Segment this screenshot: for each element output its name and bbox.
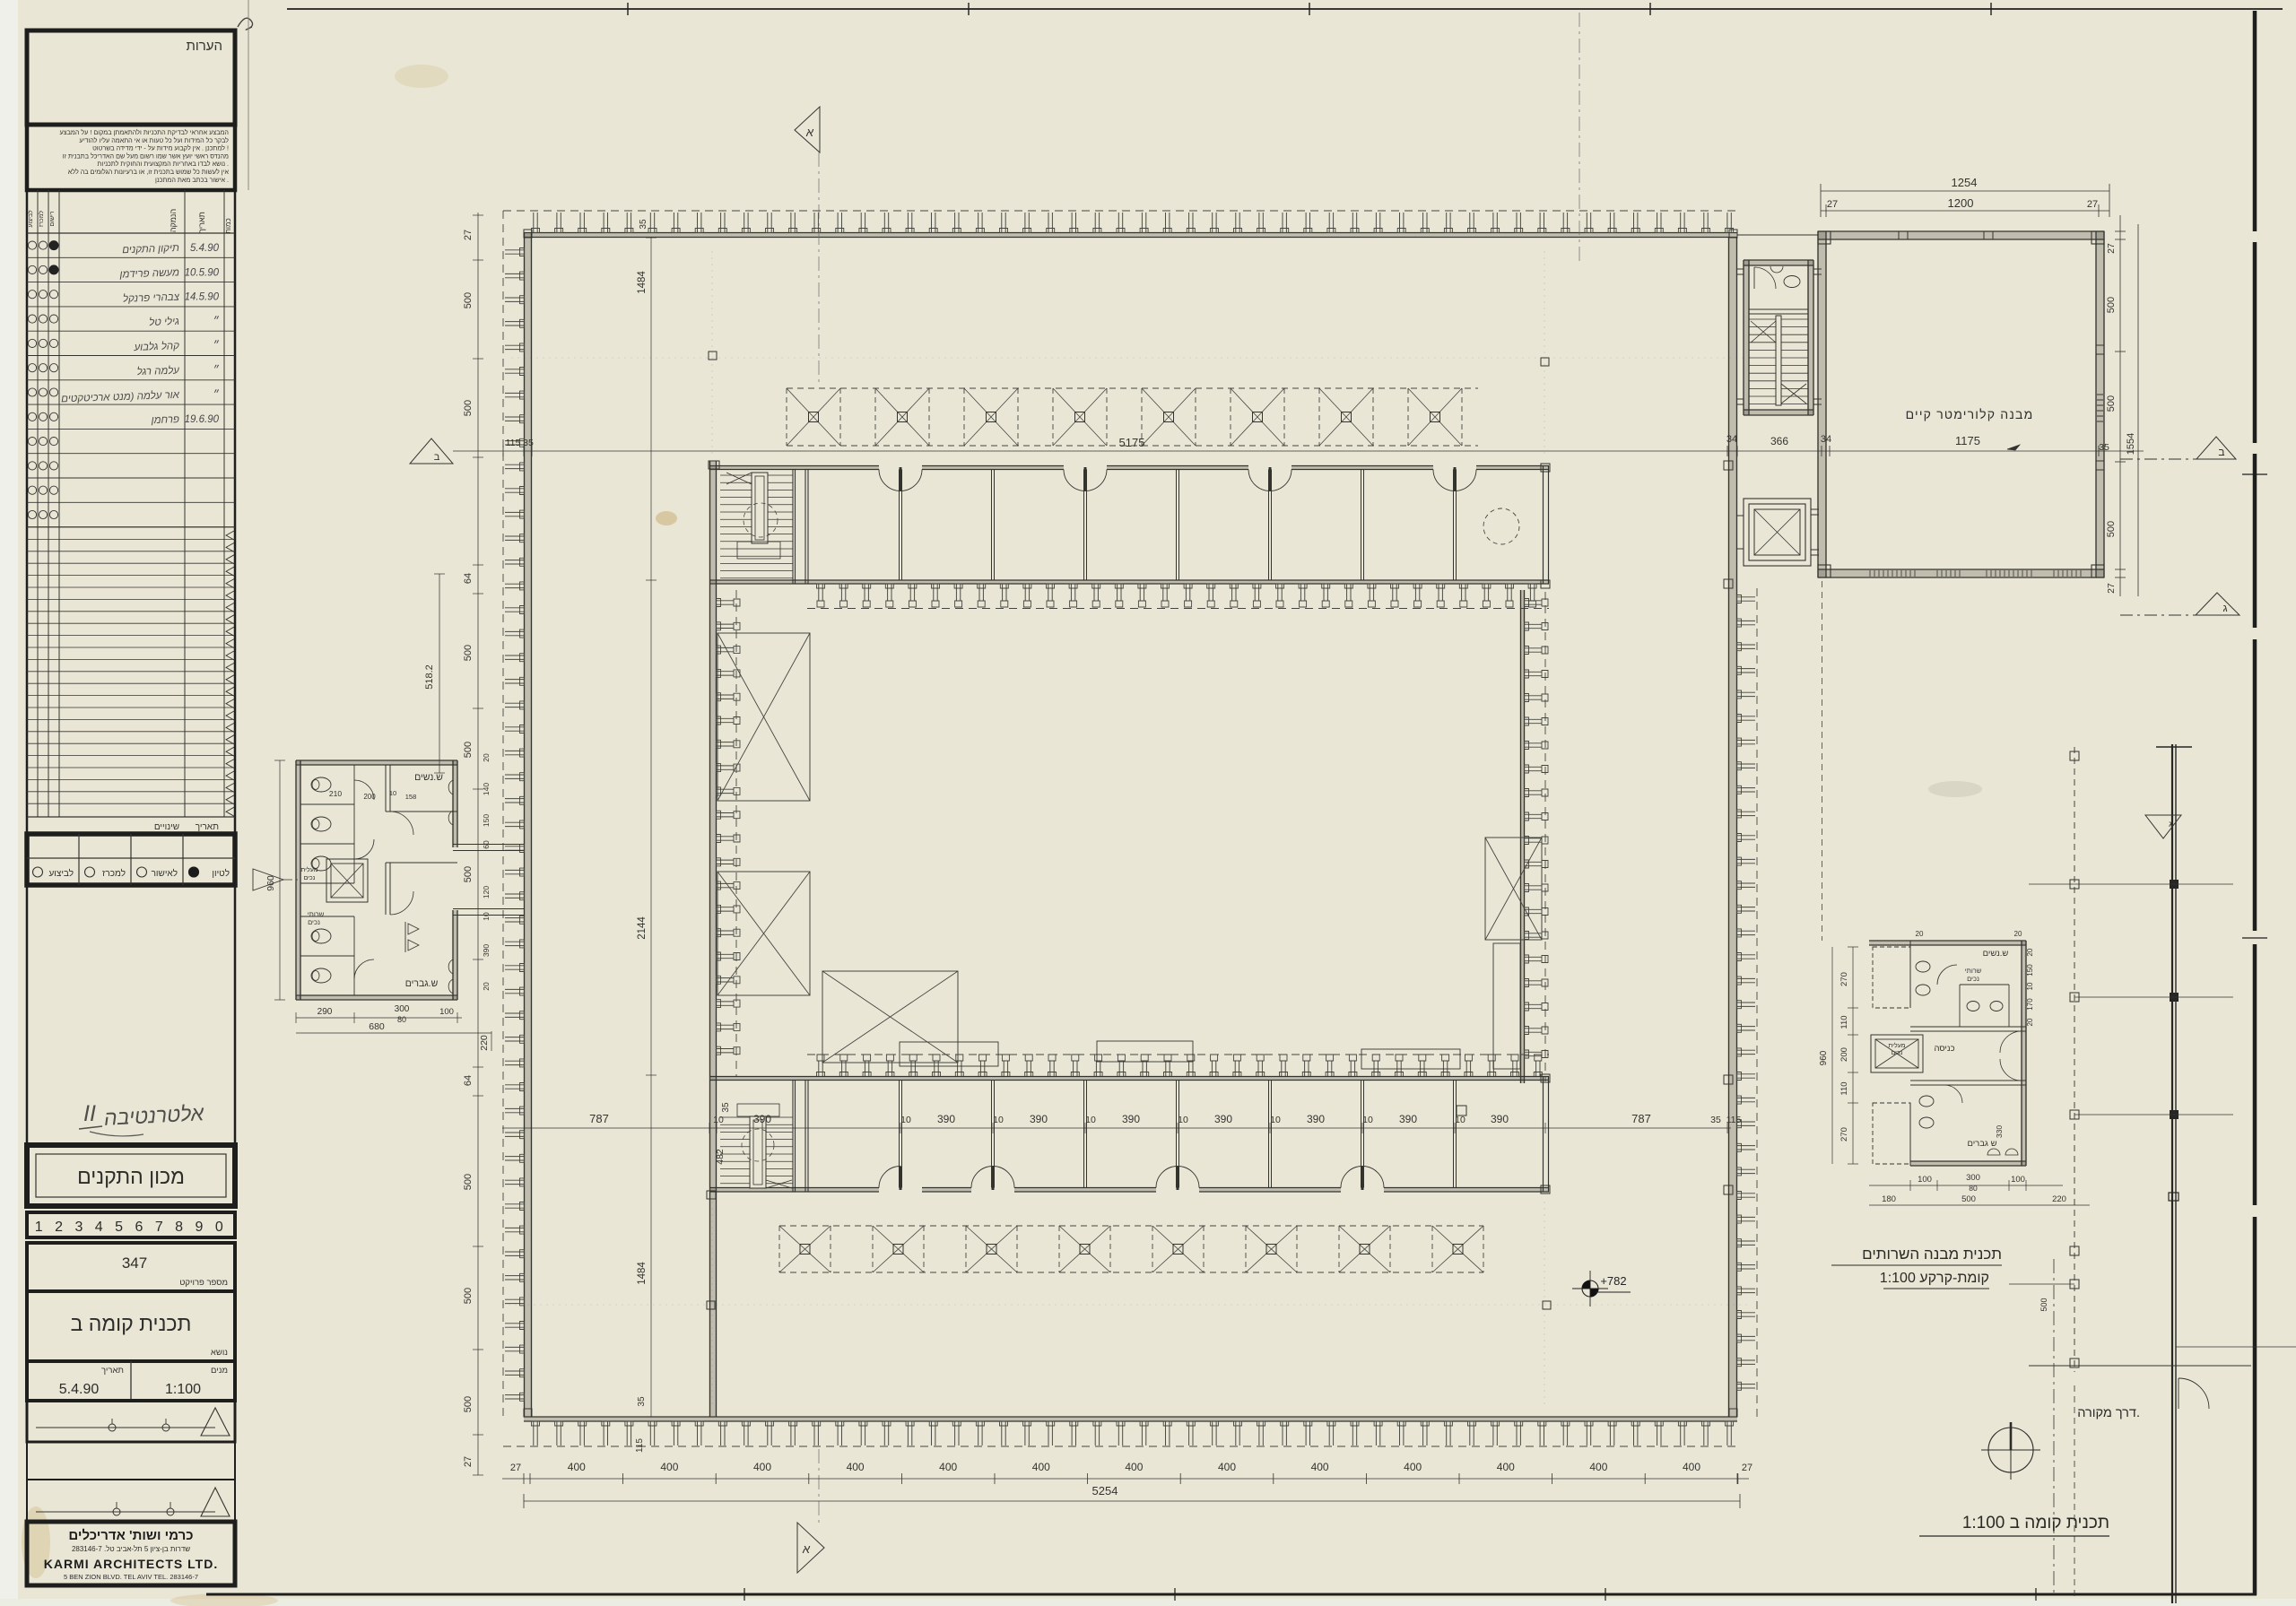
svg-text:רישום: רישום (49, 211, 56, 226)
svg-text:140: 140 (482, 783, 491, 795)
svg-text:220: 220 (2052, 1194, 2066, 1204)
svg-text:1484: 1484 (637, 271, 648, 294)
svg-text:10.5.90: 10.5.90 (185, 267, 220, 278)
svg-text:64: 64 (463, 573, 474, 584)
svg-text:35: 35 (1710, 1115, 1721, 1125)
svg-text:400: 400 (1125, 1461, 1143, 1473)
svg-text:400: 400 (847, 1461, 865, 1473)
svg-text:400: 400 (1589, 1461, 1607, 1473)
svg-text:220: 220 (479, 1035, 490, 1051)
svg-text:20: 20 (2026, 948, 2034, 956)
svg-text:300: 300 (395, 1004, 410, 1014)
svg-text:קהל גלבוע: קהל גלבוע (133, 340, 179, 353)
svg-text:קומת-קרקע 1:100: קומת-קרקע 1:100 (1880, 1271, 1989, 1286)
svg-text:500: 500 (2106, 297, 2117, 313)
svg-text:תכנית קומה ב 1:100: תכנית קומה ב 1:100 (1962, 1514, 2109, 1532)
svg-text:300: 300 (1966, 1173, 1980, 1183)
svg-text:מבנה קלורימטר קיים: מבנה קלורימטר קיים (1906, 407, 2034, 421)
svg-text:10: 10 (993, 1115, 1004, 1125)
svg-text:500: 500 (463, 1174, 474, 1190)
svg-text:10: 10 (713, 1115, 724, 1125)
svg-text:500: 500 (2106, 521, 2117, 537)
svg-text:5254: 5254 (1092, 1484, 1118, 1497)
svg-text:200: 200 (363, 793, 376, 801)
svg-text:500: 500 (463, 292, 474, 308)
svg-text:ש.נשים: ש.נשים (1983, 949, 2009, 959)
svg-text:400: 400 (753, 1461, 771, 1473)
svg-text:עלמה רגל: עלמה רגל (136, 364, 179, 378)
svg-text:מעלית: מעלית (1888, 1042, 1905, 1049)
svg-text:לבקר כל המידות ועל כל טעות או: לבקר כל המידות ועל כל טעות או אי התאמה ע… (79, 136, 229, 144)
svg-text:500: 500 (463, 866, 474, 882)
svg-text:390: 390 (753, 1113, 771, 1125)
svg-text:הנמקה: הנמקה (169, 209, 178, 232)
svg-text:ש.גברים: ש.גברים (405, 978, 439, 989)
svg-text:270: 270 (1839, 1127, 1849, 1142)
svg-text:המבצע אחראי לבדיקת התכניות ולה: המבצע אחראי לבדיקת התכניות ולהתאמתן במקו… (59, 128, 229, 136)
svg-text:תאריך: תאריך (101, 1366, 124, 1376)
svg-text:1484: 1484 (637, 1262, 648, 1285)
svg-text:500: 500 (2039, 1298, 2048, 1311)
svg-text:500: 500 (1961, 1194, 1976, 1204)
svg-text:מכון התקנים: מכון התקנים (77, 1165, 185, 1188)
svg-text:אישור בכתב מאת המתכנן .: אישור בכתב מאת המתכנן . (155, 176, 229, 184)
svg-text:5175: 5175 (1119, 436, 1145, 449)
svg-text:120: 120 (482, 886, 491, 898)
svg-text:10: 10 (900, 1115, 911, 1125)
svg-text:115: 115 (1726, 1115, 1742, 1125)
svg-text:1175: 1175 (1955, 434, 1980, 447)
svg-text:366: 366 (1770, 435, 1788, 447)
svg-text:115: 115 (635, 1438, 645, 1453)
svg-text:״: ״ (213, 316, 220, 327)
svg-text:20: 20 (482, 982, 491, 991)
svg-text:680: 680 (369, 1021, 385, 1032)
svg-text:35: 35 (523, 438, 534, 448)
svg-text:170: 170 (2026, 998, 2034, 1011)
svg-text:מספר פרויקט: מספר פרויקט (179, 1278, 228, 1288)
svg-text:KARMI ARCHITECTS LTD.: KARMI ARCHITECTS LTD. (44, 1557, 218, 1571)
svg-text:27: 27 (1742, 1463, 1752, 1473)
svg-text:ב: ב (2218, 446, 2224, 458)
svg-text:400: 400 (1311, 1461, 1329, 1473)
svg-text:390: 390 (482, 944, 491, 957)
svg-text:תאריך: תאריך (196, 822, 219, 832)
svg-text:210: 210 (329, 789, 342, 798)
svg-text:400: 400 (1404, 1461, 1422, 1473)
svg-text:שדרות בן-ציון 5 תל-אביב טל. 28: שדרות בן-ציון 5 תל-אביב טל. 283146-7 (72, 1545, 190, 1553)
svg-text:1554: 1554 (2126, 433, 2136, 455)
svg-text:לביצוע: לביצוע (48, 868, 74, 879)
svg-text:10: 10 (482, 912, 491, 921)
svg-text:שינויים: שינויים (154, 822, 179, 832)
svg-text:למכרז: למכרז (102, 868, 126, 879)
svg-text:למתכנן . אין לקבוע מידות על -: למתכנן . אין לקבוע מידות על - ידי מדידה … (92, 144, 229, 152)
svg-text:80: 80 (1969, 1184, 1978, 1193)
svg-text:דרך מקורה.: דרך מקורה. (2077, 1406, 2140, 1420)
svg-text:35: 35 (639, 219, 648, 230)
svg-text:פרחמן: פרחמן (150, 414, 179, 426)
svg-text:לביצוע: לביצוע (27, 210, 34, 228)
svg-text:27: 27 (1827, 199, 1838, 210)
svg-text:400: 400 (939, 1461, 957, 1473)
svg-text:1 2 3 4 5 6 7 8 9 0: 1 2 3 4 5 6 7 8 9 0 (35, 1220, 228, 1235)
svg-text:כניסה: כניסה (1934, 1044, 1954, 1054)
svg-text:100: 100 (1918, 1175, 1932, 1185)
svg-text:115: 115 (506, 438, 521, 448)
svg-text:500: 500 (463, 1288, 474, 1304)
svg-text:518.2: 518.2 (424, 664, 435, 690)
svg-text:34: 34 (1821, 434, 1831, 445)
svg-text:10: 10 (1085, 1115, 1096, 1125)
svg-text:1200: 1200 (1948, 196, 1974, 210)
svg-text:נושא לבדו באחריות המקצועית והח: נושא לבדו באחריות המקצועית והחוקית לתכני… (98, 160, 229, 168)
svg-text:א: א (805, 126, 814, 139)
svg-text:״: ״ (213, 340, 220, 352)
svg-text:למכרז: למכרז (38, 211, 45, 227)
svg-text:35: 35 (721, 1102, 731, 1113)
svg-text:390: 390 (1122, 1113, 1140, 1125)
svg-text:390: 390 (1399, 1113, 1417, 1125)
svg-text:שרותי: שרותי (308, 910, 325, 918)
svg-text:19.6.90: 19.6.90 (185, 414, 220, 425)
svg-text:תיקון התקנים: תיקון התקנים (122, 243, 179, 256)
svg-text:270: 270 (1839, 972, 1849, 986)
svg-text:180: 180 (1882, 1194, 1896, 1204)
svg-text:תאריך: תאריך (197, 212, 206, 233)
svg-text:787: 787 (1631, 1112, 1651, 1125)
svg-text:290: 290 (317, 1007, 333, 1017)
svg-text:500: 500 (463, 645, 474, 661)
svg-text:787: 787 (589, 1112, 609, 1125)
svg-text:20: 20 (1916, 930, 1924, 938)
svg-text:64: 64 (463, 1075, 474, 1086)
svg-text:400: 400 (660, 1461, 678, 1473)
svg-text:II: II (83, 1101, 96, 1126)
svg-text:500: 500 (463, 742, 474, 758)
svg-text:27: 27 (2106, 243, 2117, 254)
svg-text:100: 100 (2011, 1175, 2025, 1185)
svg-text:390: 390 (1214, 1113, 1232, 1125)
svg-text:הערות: הערות (186, 39, 222, 54)
svg-text:960: 960 (1819, 1050, 1829, 1065)
svg-text:34: 34 (1726, 434, 1737, 445)
svg-text:27: 27 (463, 230, 474, 240)
svg-text:10: 10 (1362, 1115, 1373, 1125)
svg-text:14.5.90: 14.5.90 (185, 292, 220, 303)
svg-text:330: 330 (1995, 1125, 2004, 1138)
svg-text:60: 60 (482, 840, 491, 849)
svg-text:482: 482 (715, 1149, 726, 1165)
svg-text:347: 347 (122, 1254, 147, 1272)
svg-text:+782: +782 (1600, 1274, 1626, 1288)
svg-text:תכנית קומה ב: תכנית קומה ב (71, 1312, 192, 1335)
svg-text:5.4.90: 5.4.90 (190, 243, 220, 254)
svg-text:10: 10 (2026, 982, 2034, 990)
svg-text:א: א (802, 1542, 811, 1556)
svg-text:ג: ג (2222, 602, 2227, 614)
svg-text:״: ״ (213, 365, 220, 377)
svg-text:נכים: נכים (308, 918, 320, 926)
svg-text:158: 158 (405, 793, 417, 801)
svg-text:400: 400 (1683, 1461, 1700, 1473)
svg-text:לאישור: לאישור (152, 868, 178, 879)
svg-text:נכים: נכים (1892, 1050, 1903, 1056)
svg-text:10: 10 (1455, 1115, 1465, 1125)
svg-text:נושא: נושא (211, 1348, 228, 1358)
svg-text:מנים: מנים (211, 1366, 228, 1376)
svg-text:27: 27 (463, 1456, 474, 1467)
svg-text:27: 27 (2087, 199, 2098, 210)
svg-text:27: 27 (510, 1463, 521, 1473)
svg-text:150: 150 (482, 814, 491, 827)
svg-text:2144: 2144 (637, 916, 648, 940)
svg-text:390: 390 (937, 1113, 955, 1125)
svg-text:150: 150 (2026, 964, 2034, 977)
svg-text:390: 390 (1030, 1113, 1048, 1125)
svg-text:400: 400 (1218, 1461, 1236, 1473)
svg-text:לטיון: לטיון (212, 868, 230, 879)
svg-text:כמות: כמות (224, 218, 232, 233)
svg-text:5 BEN ZION BLVD. TEL AVIV TEL.: 5 BEN ZION BLVD. TEL AVIV TEL. 283146-7 (64, 1573, 198, 1581)
svg-text:מעשה פרידמן: מעשה פרידמן (118, 267, 179, 280)
svg-text:כרמי ושות' אדריכלים: כרמי ושות' אדריכלים (68, 1528, 193, 1543)
svg-text:400: 400 (1497, 1461, 1515, 1473)
svg-text:100: 100 (439, 1007, 454, 1017)
svg-text:מעלית: מעלית (300, 866, 317, 873)
svg-text:110: 110 (1839, 1015, 1849, 1029)
svg-text:10: 10 (1270, 1115, 1281, 1125)
svg-text:ש.נשים: ש.נשים (414, 772, 443, 783)
svg-text:110: 110 (1839, 1081, 1849, 1095)
svg-text:400: 400 (1032, 1461, 1050, 1473)
svg-text:נכים: נכים (304, 875, 316, 881)
svg-text:80: 80 (397, 1015, 406, 1024)
svg-text:20: 20 (2026, 1018, 2034, 1026)
svg-text:תכנית מבנה השרותים: תכנית מבנה השרותים (1862, 1246, 2002, 1263)
svg-text:20: 20 (2014, 930, 2022, 938)
svg-text:נכים: נכים (1967, 975, 1979, 983)
svg-text:390: 390 (1307, 1113, 1325, 1125)
svg-text:ב: ב (434, 452, 440, 463)
svg-text:צבהרי פרנקל: צבהרי פרנקל (123, 291, 180, 305)
svg-text:10: 10 (389, 789, 396, 797)
svg-text:200: 200 (1839, 1047, 1849, 1062)
svg-text:960: 960 (265, 875, 276, 891)
svg-text:20: 20 (482, 753, 491, 762)
svg-text:27: 27 (2106, 583, 2117, 594)
svg-text:ג: ג (2169, 820, 2172, 829)
svg-text:5.4.90: 5.4.90 (59, 1382, 100, 1397)
svg-text:390: 390 (1491, 1113, 1509, 1125)
svg-text:10: 10 (1178, 1115, 1188, 1125)
svg-text:35: 35 (637, 1396, 647, 1407)
svg-text:אין לעשות כל שמוש בתכנית זו, א: אין לעשות כל שמוש בתכנית זו, או ברעיונות… (68, 168, 230, 176)
svg-text:גילי טל: גילי טל (149, 316, 179, 328)
svg-text:400: 400 (568, 1461, 586, 1473)
svg-text:500: 500 (2106, 395, 2117, 412)
svg-text:1254: 1254 (1952, 176, 1978, 189)
svg-text:1:100: 1:100 (165, 1382, 201, 1397)
svg-text:500: 500 (463, 400, 474, 416)
svg-text:ש גברים: ש גברים (1967, 1139, 1996, 1149)
svg-text:500: 500 (463, 1396, 474, 1412)
svg-text:מהנדס ראשי יועץ אשר שמו רשום מ: מהנדס ראשי יועץ אשר שמו רשום מעל שם האדר… (63, 152, 229, 160)
svg-text:״: ״ (213, 389, 220, 401)
svg-text:שרותי: שרותי (1965, 967, 1982, 975)
